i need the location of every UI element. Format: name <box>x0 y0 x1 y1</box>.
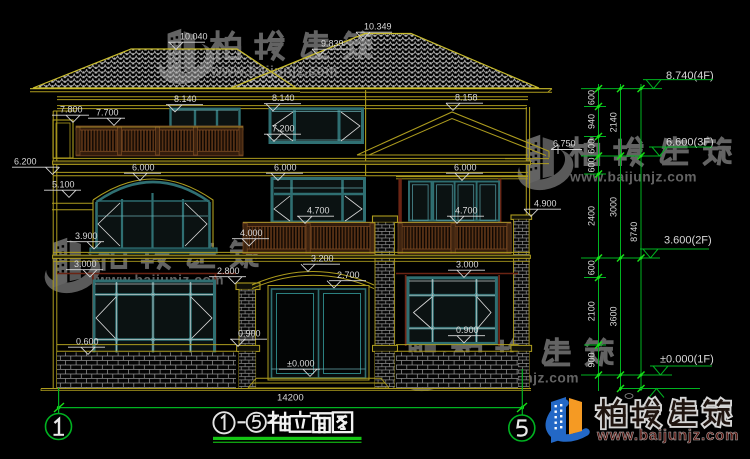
svg-text:3.000: 3.000 <box>74 259 97 269</box>
svg-text:4.900: 4.900 <box>534 199 557 209</box>
svg-text:8.140: 8.140 <box>272 93 295 103</box>
svg-text:2140: 2140 <box>609 112 619 132</box>
svg-text:600: 600 <box>587 260 597 275</box>
svg-text:2100: 2100 <box>587 301 597 321</box>
svg-text:6.200: 6.200 <box>14 157 37 167</box>
svg-text:±0.000(1F): ±0.000(1F) <box>660 354 714 366</box>
svg-text:8.740(4F): 8.740(4F) <box>666 70 714 82</box>
svg-text:940: 940 <box>587 114 597 129</box>
svg-text:3.600(2F): 3.600(2F) <box>664 235 712 247</box>
svg-text:2.700: 2.700 <box>337 270 360 280</box>
svg-text:600: 600 <box>587 90 597 105</box>
svg-text:3600: 3600 <box>609 306 619 326</box>
svg-text:900: 900 <box>587 352 597 367</box>
svg-text:10.349: 10.349 <box>364 22 392 32</box>
svg-text:7.200: 7.200 <box>272 124 295 134</box>
svg-text:5.100: 5.100 <box>52 180 75 190</box>
svg-text:2400: 2400 <box>587 206 597 226</box>
svg-text:600: 600 <box>587 139 597 154</box>
svg-text:6.000: 6.000 <box>132 163 155 173</box>
svg-text:9.839: 9.839 <box>321 39 344 49</box>
svg-text:600: 600 <box>587 157 597 172</box>
svg-text:6.750: 6.750 <box>553 139 576 149</box>
svg-text:0.900: 0.900 <box>238 329 261 339</box>
svg-text:8740: 8740 <box>629 222 639 242</box>
svg-text:www.baijunjz.com: www.baijunjz.com <box>596 427 739 444</box>
svg-text:7.700: 7.700 <box>96 108 119 118</box>
svg-text:0.600: 0.600 <box>76 337 99 347</box>
svg-text:±0.000: ±0.000 <box>287 359 314 369</box>
svg-text:2.800: 2.800 <box>217 266 240 276</box>
svg-text:3.000: 3.000 <box>456 260 479 270</box>
svg-text:6.000: 6.000 <box>454 163 477 173</box>
svg-text:14200: 14200 <box>277 393 304 404</box>
svg-text:0.900: 0.900 <box>456 325 479 335</box>
svg-text:4.700: 4.700 <box>307 206 330 216</box>
svg-text:3000: 3000 <box>609 197 619 217</box>
svg-text:7.800: 7.800 <box>60 105 83 115</box>
svg-text:10.040: 10.040 <box>180 32 208 42</box>
svg-text:3.200: 3.200 <box>311 254 334 264</box>
svg-text:3.900: 3.900 <box>75 231 98 241</box>
svg-text:8.158: 8.158 <box>455 93 478 103</box>
svg-text:4.000: 4.000 <box>240 228 263 238</box>
svg-text:4.700: 4.700 <box>455 206 478 216</box>
svg-text:8.140: 8.140 <box>174 94 197 104</box>
svg-text:6.000: 6.000 <box>274 163 297 173</box>
